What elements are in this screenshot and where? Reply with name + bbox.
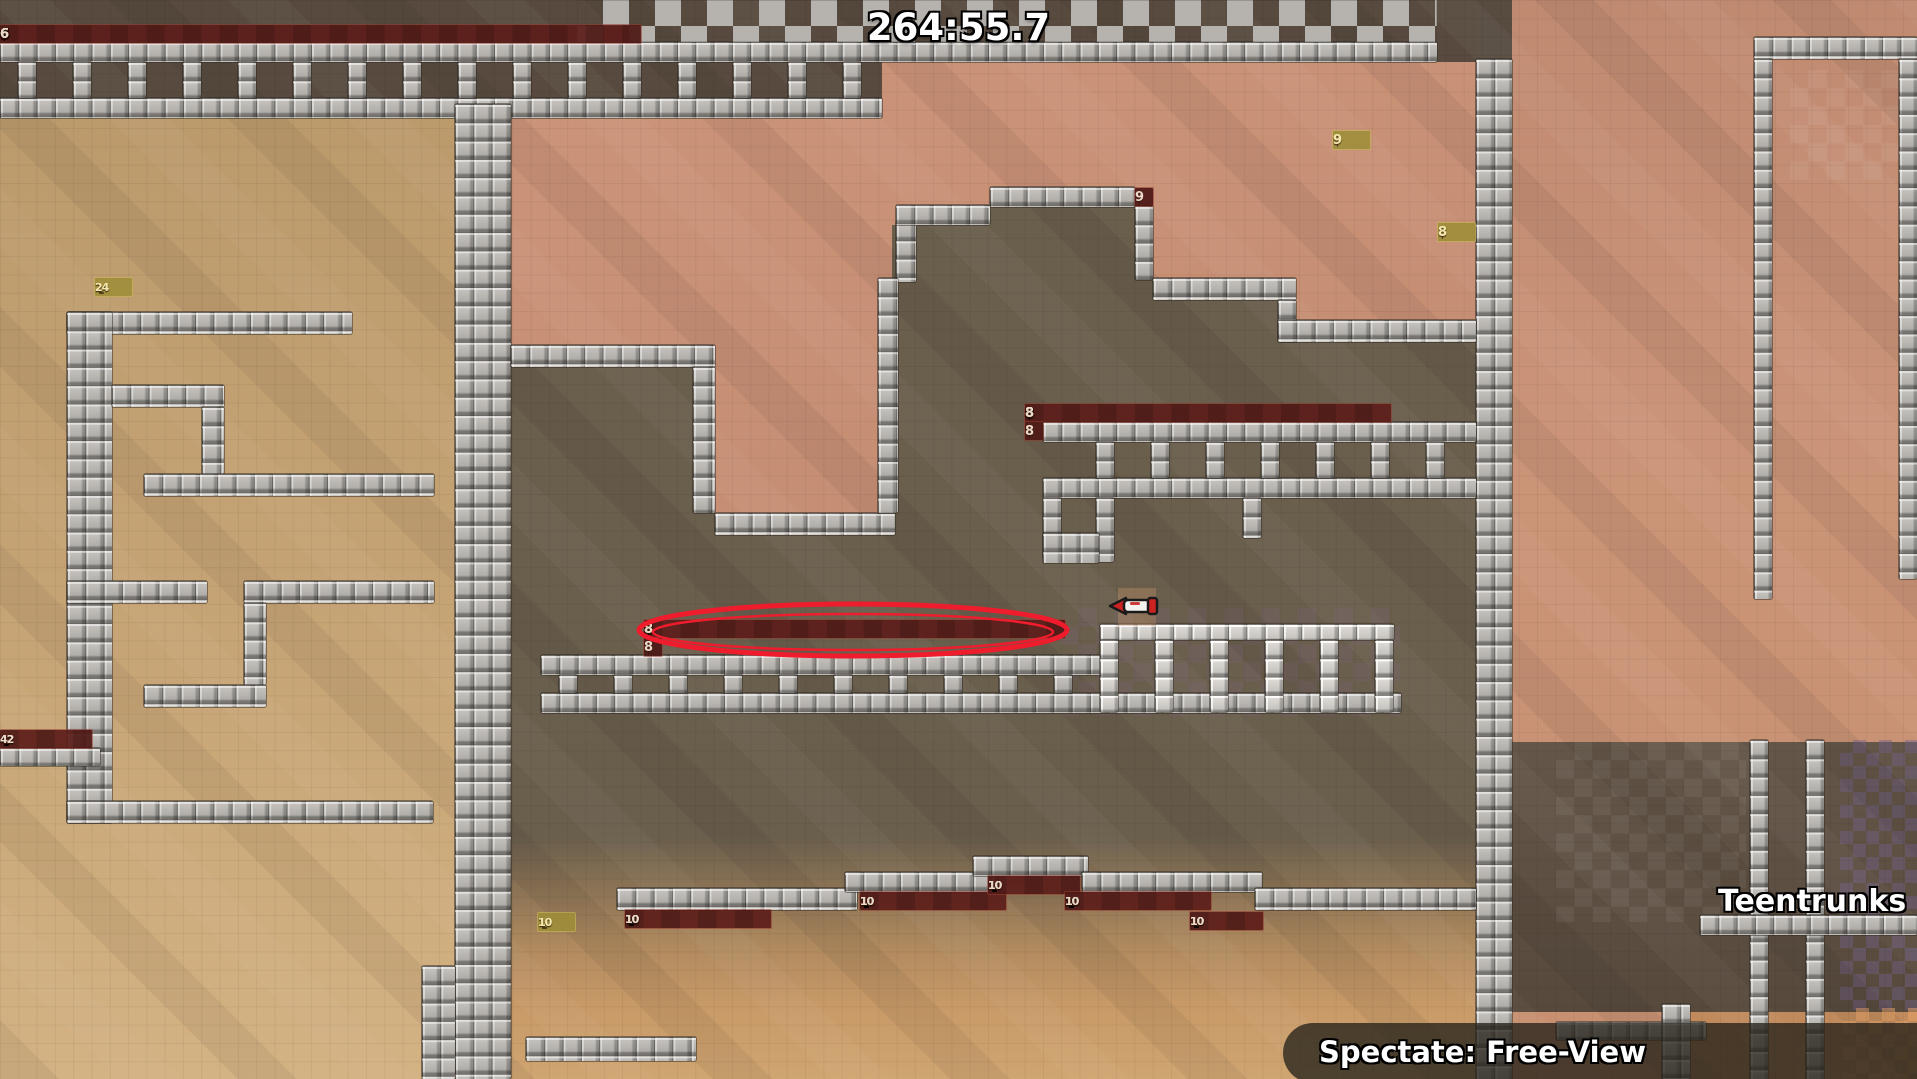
tile-number-strip: 1010 <box>538 913 575 931</box>
map-pillar <box>348 62 366 98</box>
map-pillar <box>1206 442 1224 478</box>
map-wall <box>67 581 207 603</box>
tile-number-strip: 1010101010101010 <box>860 892 1006 910</box>
map-pillar <box>1151 442 1169 478</box>
map-pillar <box>889 675 907 693</box>
map-pillar <box>128 62 146 98</box>
map-wall <box>896 222 916 282</box>
map-wall <box>67 801 433 823</box>
map-wall <box>1082 872 1262 892</box>
map-pillar <box>1265 640 1283 712</box>
map-pillar <box>568 62 586 98</box>
map-wall <box>1255 888 1476 910</box>
map-wall <box>973 856 1088 876</box>
tile-number-strip: 10101010 <box>1190 912 1263 930</box>
tile-number: 10 <box>860 895 873 908</box>
tile-number: 9 <box>1135 191 1144 204</box>
map-pillar <box>183 62 201 98</box>
map-pillar <box>834 675 852 693</box>
map-wall <box>693 367 715 513</box>
map-pillar <box>733 62 751 98</box>
map-wall <box>1153 278 1296 300</box>
map-pillar <box>1261 442 1279 478</box>
player-name: Teentrunks <box>1718 884 1906 919</box>
map-wall <box>202 407 224 474</box>
map-pillar <box>779 675 797 693</box>
tile-number: 24 <box>95 281 108 294</box>
map-pillar <box>238 62 256 98</box>
tile-number: 10 <box>625 913 638 926</box>
map-pillar <box>1100 640 1118 712</box>
map-wall <box>455 104 511 1079</box>
tile-number: 10 <box>1190 915 1203 928</box>
map-wall <box>144 685 266 707</box>
map-pillar <box>669 675 687 693</box>
tile-number-strip: 1010101010101010 <box>625 910 771 928</box>
map-wall <box>1043 478 1476 498</box>
tile-number: 8 <box>1025 425 1034 438</box>
map-pillar <box>843 62 861 98</box>
map-wall <box>878 278 898 513</box>
map-pillar <box>788 62 806 98</box>
tile-number: 10 <box>1065 895 1078 908</box>
grenade-pickup-icon <box>1104 584 1166 630</box>
map-pillar <box>1426 442 1444 478</box>
tile-number-strip: 4242424242 <box>0 730 92 748</box>
map-wall <box>990 187 1135 207</box>
map-pillar <box>614 675 632 693</box>
background-region-rightbottom <box>1512 742 1917 1012</box>
tile-number: 8 <box>1438 226 1447 239</box>
map-pillar <box>1320 640 1338 712</box>
map-pillar <box>293 62 311 98</box>
map-pillar <box>678 62 696 98</box>
tile-number-strip: 1010101010101010 <box>1065 892 1211 910</box>
map-pillar <box>999 675 1017 693</box>
tile-number-strip: 9 <box>1135 188 1153 206</box>
map-pillar <box>944 675 962 693</box>
map-wall <box>1754 59 1772 599</box>
map-wall <box>1043 422 1476 442</box>
map-pillar <box>623 62 641 98</box>
tile-number-strip: 2424 <box>95 278 132 296</box>
map-pillar <box>559 675 577 693</box>
tile-number: 8 <box>1025 407 1034 420</box>
map-pillar <box>403 62 421 98</box>
tile-number: 9 <box>1333 134 1342 147</box>
map-wall <box>617 888 857 910</box>
map-pillar <box>1375 640 1393 712</box>
map-wall <box>244 603 266 685</box>
map-wall <box>511 345 715 367</box>
map-wall <box>896 205 990 225</box>
map-wall <box>1278 320 1476 342</box>
map-pillar <box>1371 442 1389 478</box>
map-wall <box>715 513 895 535</box>
map-wall <box>1243 498 1261 538</box>
tile-number-strip: 99 <box>1333 131 1370 149</box>
map-pillar <box>1210 640 1228 712</box>
tile-number: 42 <box>0 733 13 746</box>
map-wall <box>0 748 100 766</box>
tile-number: 10 <box>538 916 551 929</box>
spectate-status-bar: Spectate: Free-View <box>1283 1023 1917 1079</box>
map-pillar <box>724 675 742 693</box>
map-wall <box>1899 59 1917 579</box>
map-wall <box>0 98 882 118</box>
map-wall <box>1135 206 1153 280</box>
map-wall <box>422 966 455 1079</box>
map-pillar <box>1054 675 1072 693</box>
map-wall <box>1476 59 1512 1079</box>
tile-number-strip: 88 <box>1438 223 1475 241</box>
map-pillar <box>513 62 531 98</box>
map-pillar <box>1096 442 1114 478</box>
map-pillar <box>18 62 36 98</box>
map-wall <box>526 1037 696 1061</box>
race-timer: 264:55.7 <box>0 6 1917 49</box>
map-wall <box>244 581 434 603</box>
map-pillar <box>458 62 476 98</box>
tile-number-strip: 8 <box>1025 422 1043 440</box>
spectate-status-label: Spectate: Free-View <box>1319 1035 1646 1069</box>
map-pillar <box>1316 442 1334 478</box>
map-pillar <box>1155 640 1173 712</box>
game-viewport[interactable]: 6666666666666666666666666666666666624249… <box>0 0 1917 1079</box>
tile-number: 10 <box>988 879 1001 892</box>
map-wall <box>112 385 224 407</box>
map-wall <box>1043 533 1099 563</box>
map-wall <box>144 474 434 496</box>
highlight-ellipse <box>630 598 1076 662</box>
map-pillar <box>73 62 91 98</box>
tile-number-strip: 88888888888888888888 <box>1025 404 1391 422</box>
